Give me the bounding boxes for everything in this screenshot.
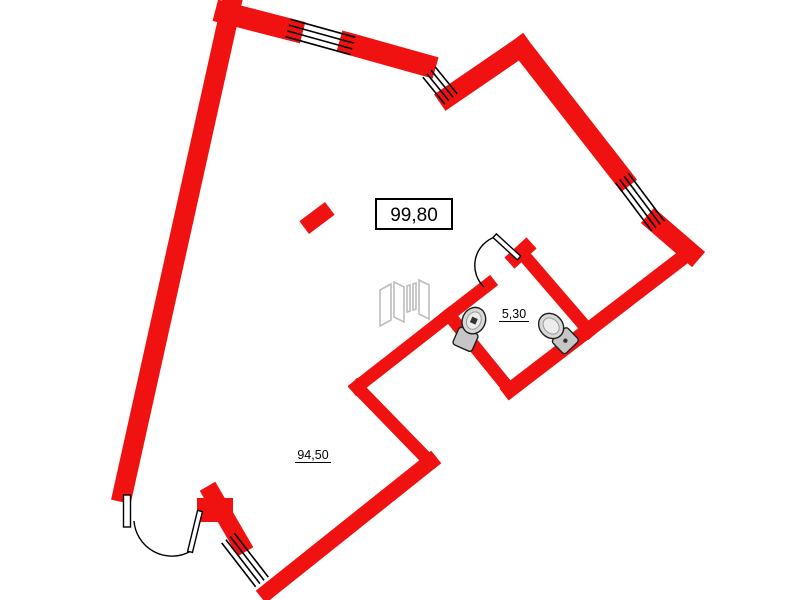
- door-jamb: [124, 495, 131, 527]
- wall-entry-stub: [197, 498, 233, 522]
- total-area-label: 99,80: [390, 205, 438, 226]
- floor-plan-svg: 99,80 94,50 5,30: [0, 0, 800, 600]
- wall-top-b: [350, 44, 425, 65]
- wall-left: [123, 6, 231, 492]
- wall-inner-a: [357, 315, 449, 387]
- main-room-area: 94,50: [295, 448, 331, 463]
- column: [299, 202, 334, 234]
- total-area-callout: 99,80: [376, 199, 452, 229]
- main-room-area-label: 94,50: [297, 448, 328, 462]
- wall-inner-b: [357, 387, 430, 462]
- door-leaf: [188, 510, 203, 552]
- bathroom-area: 5,30: [499, 307, 529, 322]
- bathroom-area-label: 5,30: [502, 307, 526, 321]
- folding-screen-icon: [380, 280, 429, 326]
- wall-right-upper: [521, 47, 623, 178]
- door-swing-arc: [134, 521, 191, 556]
- wall-bottom: [267, 462, 430, 592]
- floor-plan-page: 99,80 94,50 5,30: [0, 0, 800, 600]
- wall-notch-up: [448, 47, 521, 97]
- entrance-door-icon: [124, 495, 203, 556]
